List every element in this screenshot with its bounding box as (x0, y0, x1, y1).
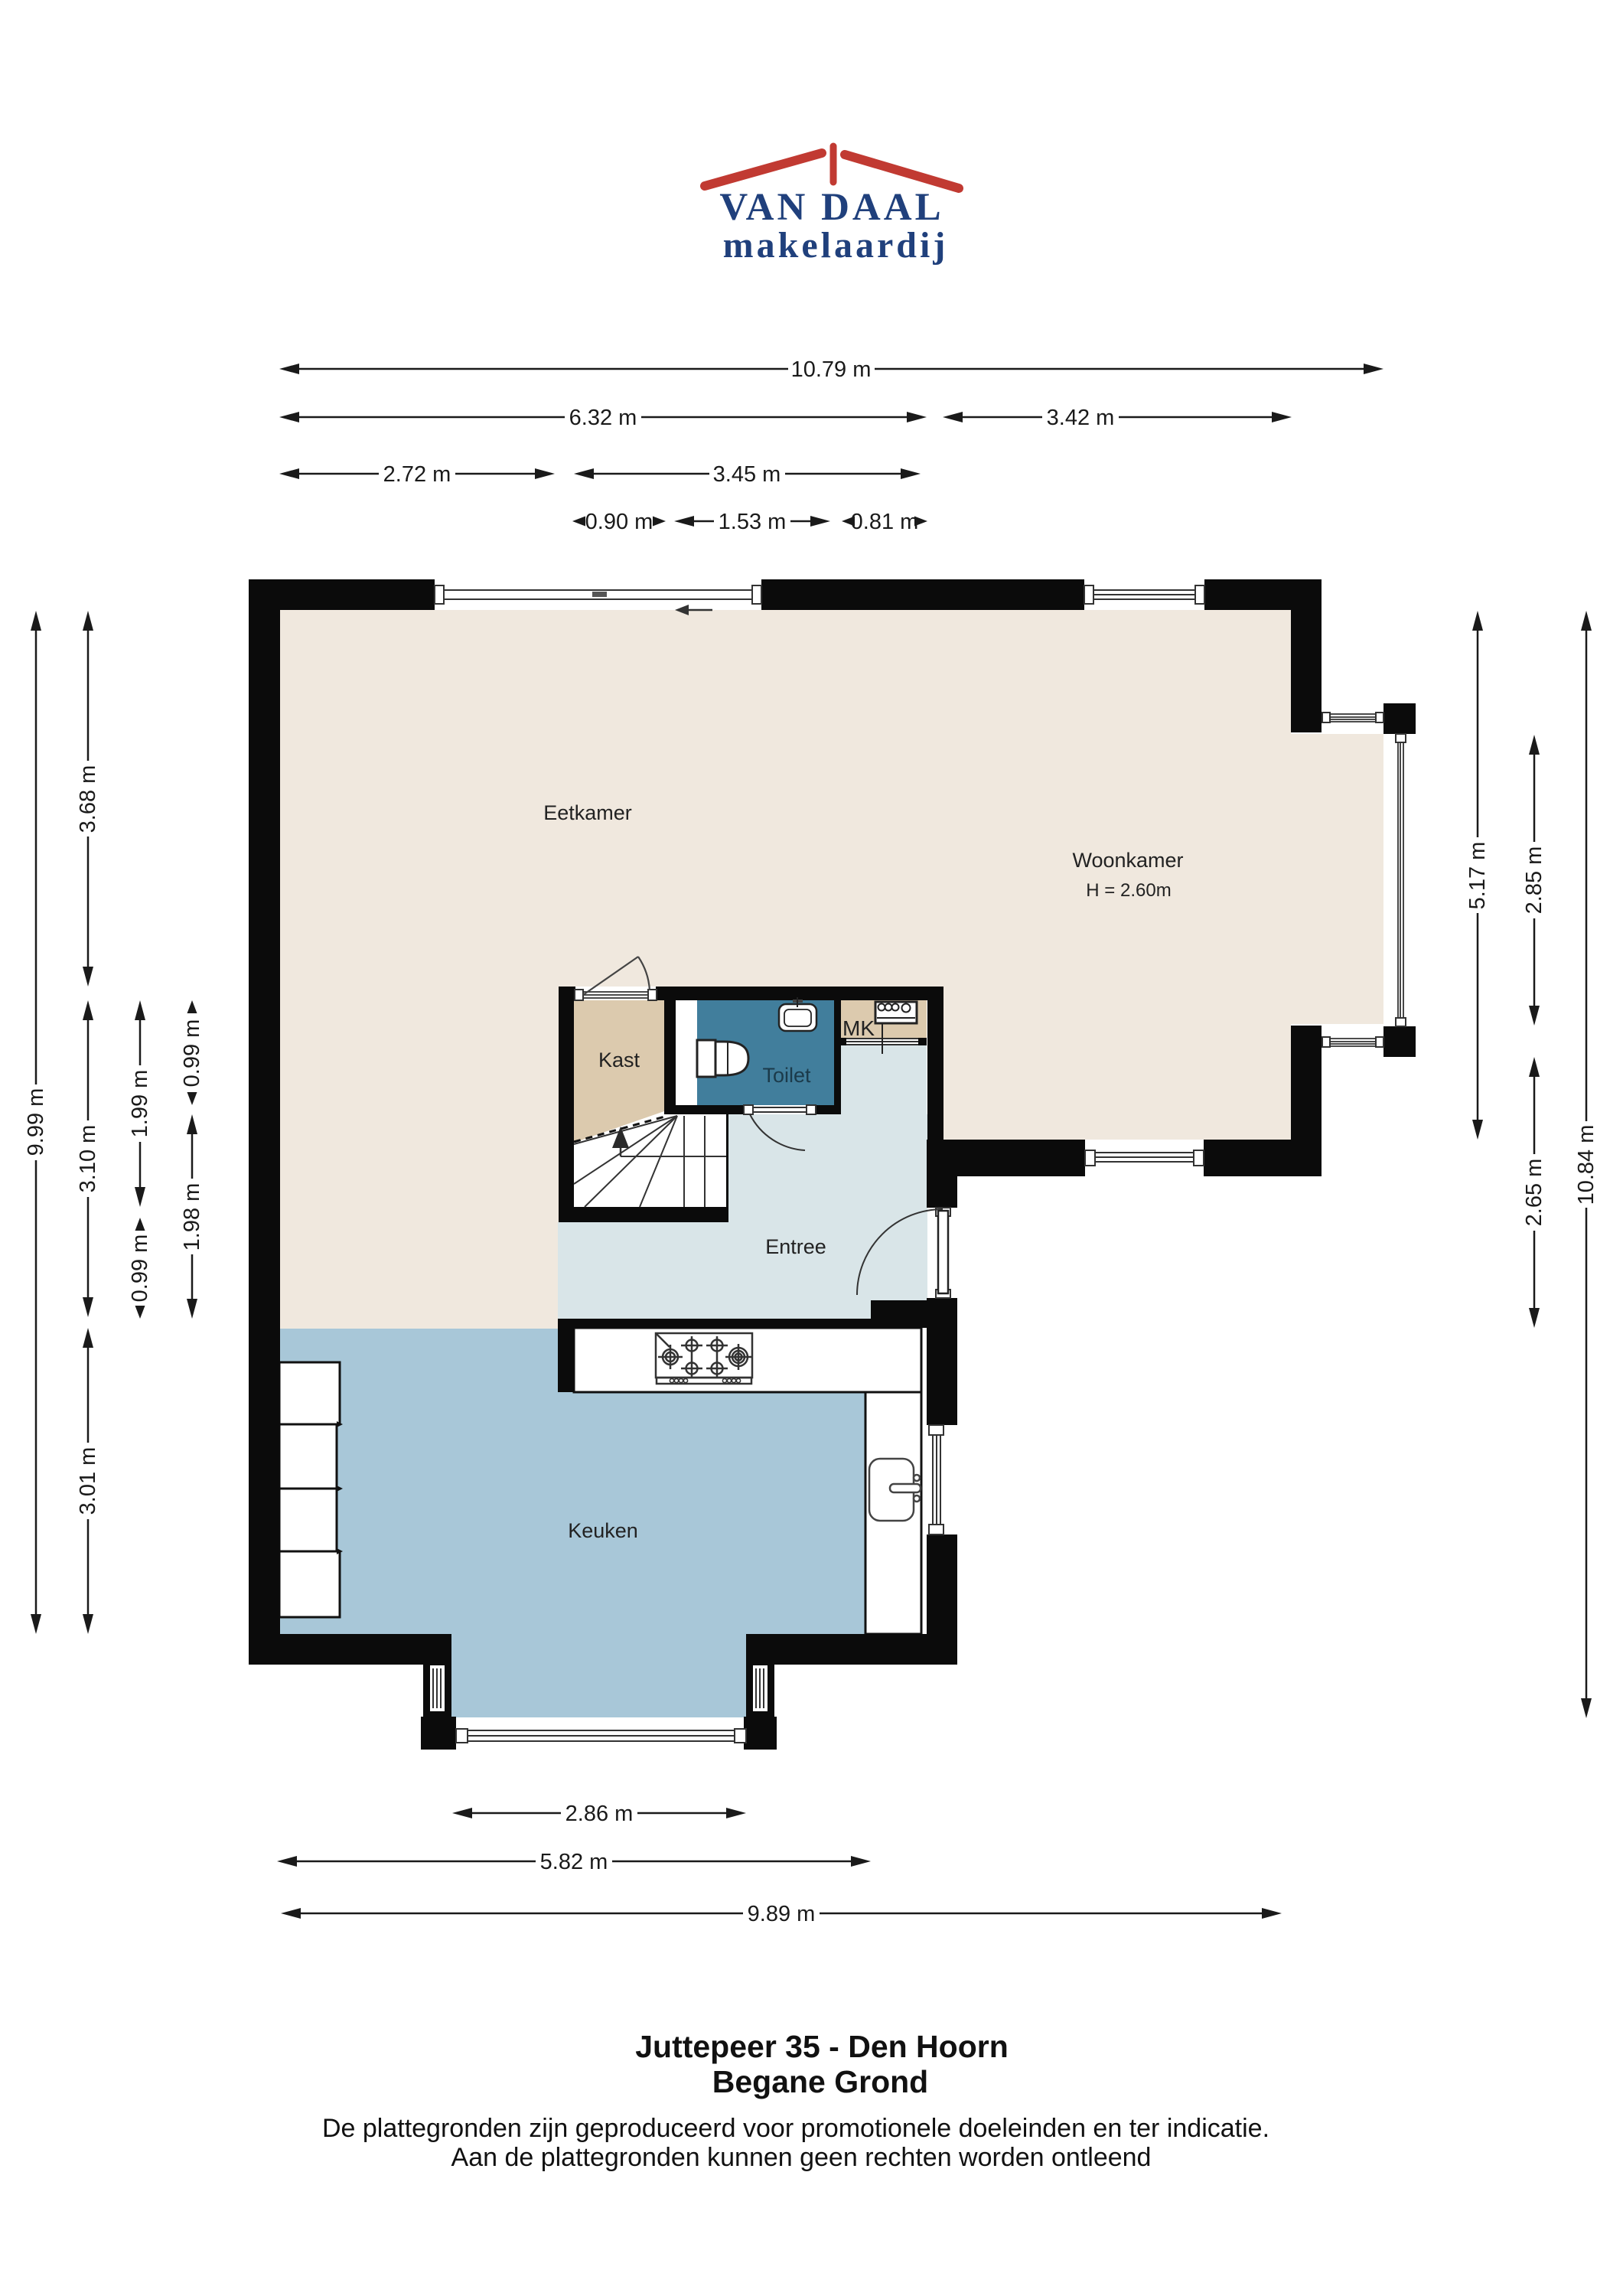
svg-text:1.98 m: 1.98 m (180, 1183, 204, 1251)
svg-text:Begane Grond: Begane Grond (712, 2064, 928, 2099)
svg-text:5.82 m: 5.82 m (540, 1850, 608, 1874)
svg-text:1.53 m: 1.53 m (719, 510, 787, 534)
svg-text:Aan de plattegronden kunnen ge: Aan de plattegronden kunnen geen rechten… (451, 2143, 1152, 2172)
svg-text:2.86 m: 2.86 m (565, 1802, 634, 1826)
svg-text:3.68 m: 3.68 m (76, 765, 100, 833)
svg-text:Keuken: Keuken (568, 1519, 638, 1542)
svg-text:2.65 m: 2.65 m (1522, 1159, 1546, 1227)
svg-text:Toilet: Toilet (762, 1064, 811, 1087)
svg-text:3.42 m: 3.42 m (1047, 406, 1115, 430)
svg-text:VAN DAAL: VAN DAAL (719, 186, 943, 229)
svg-text:Juttepeer 35 - Den Hoorn: Juttepeer 35 - Den Hoorn (635, 2029, 1009, 2064)
svg-text:Eetkamer: Eetkamer (543, 801, 632, 824)
svg-text:2.85 m: 2.85 m (1522, 846, 1546, 915)
svg-text:1.99 m: 1.99 m (128, 1070, 152, 1138)
svg-text:0.99 m: 0.99 m (128, 1234, 152, 1303)
svg-text:3.45 m: 3.45 m (713, 462, 781, 487)
svg-text:Woonkamer: Woonkamer (1072, 849, 1183, 872)
svg-text:9.99 m: 9.99 m (24, 1088, 48, 1156)
svg-text:2.72 m: 2.72 m (383, 462, 451, 487)
svg-text:0.81 m: 0.81 m (851, 510, 919, 534)
svg-text:6.32 m: 6.32 m (569, 406, 637, 430)
svg-text:10.79 m: 10.79 m (791, 357, 872, 382)
svg-text:0.90 m: 0.90 m (585, 510, 653, 534)
svg-text:Kast: Kast (598, 1049, 640, 1071)
svg-text:3.10 m: 3.10 m (76, 1125, 100, 1193)
svg-text:10.84 m: 10.84 m (1574, 1125, 1599, 1205)
svg-text:9.89 m: 9.89 m (748, 1902, 816, 1926)
svg-text:Entree: Entree (765, 1235, 826, 1258)
svg-text:De plattegronden zijn geproduc: De plattegronden zijn geproduceerd voor … (322, 2114, 1269, 2143)
svg-text:makelaardij: makelaardij (723, 225, 949, 266)
svg-text:MK: MK (842, 1016, 875, 1040)
svg-text:3.01 m: 3.01 m (76, 1447, 100, 1515)
svg-text:H = 2.60m: H = 2.60m (1086, 880, 1171, 901)
svg-text:5.17 m: 5.17 m (1465, 842, 1490, 910)
svg-text:0.99 m: 0.99 m (180, 1019, 204, 1088)
